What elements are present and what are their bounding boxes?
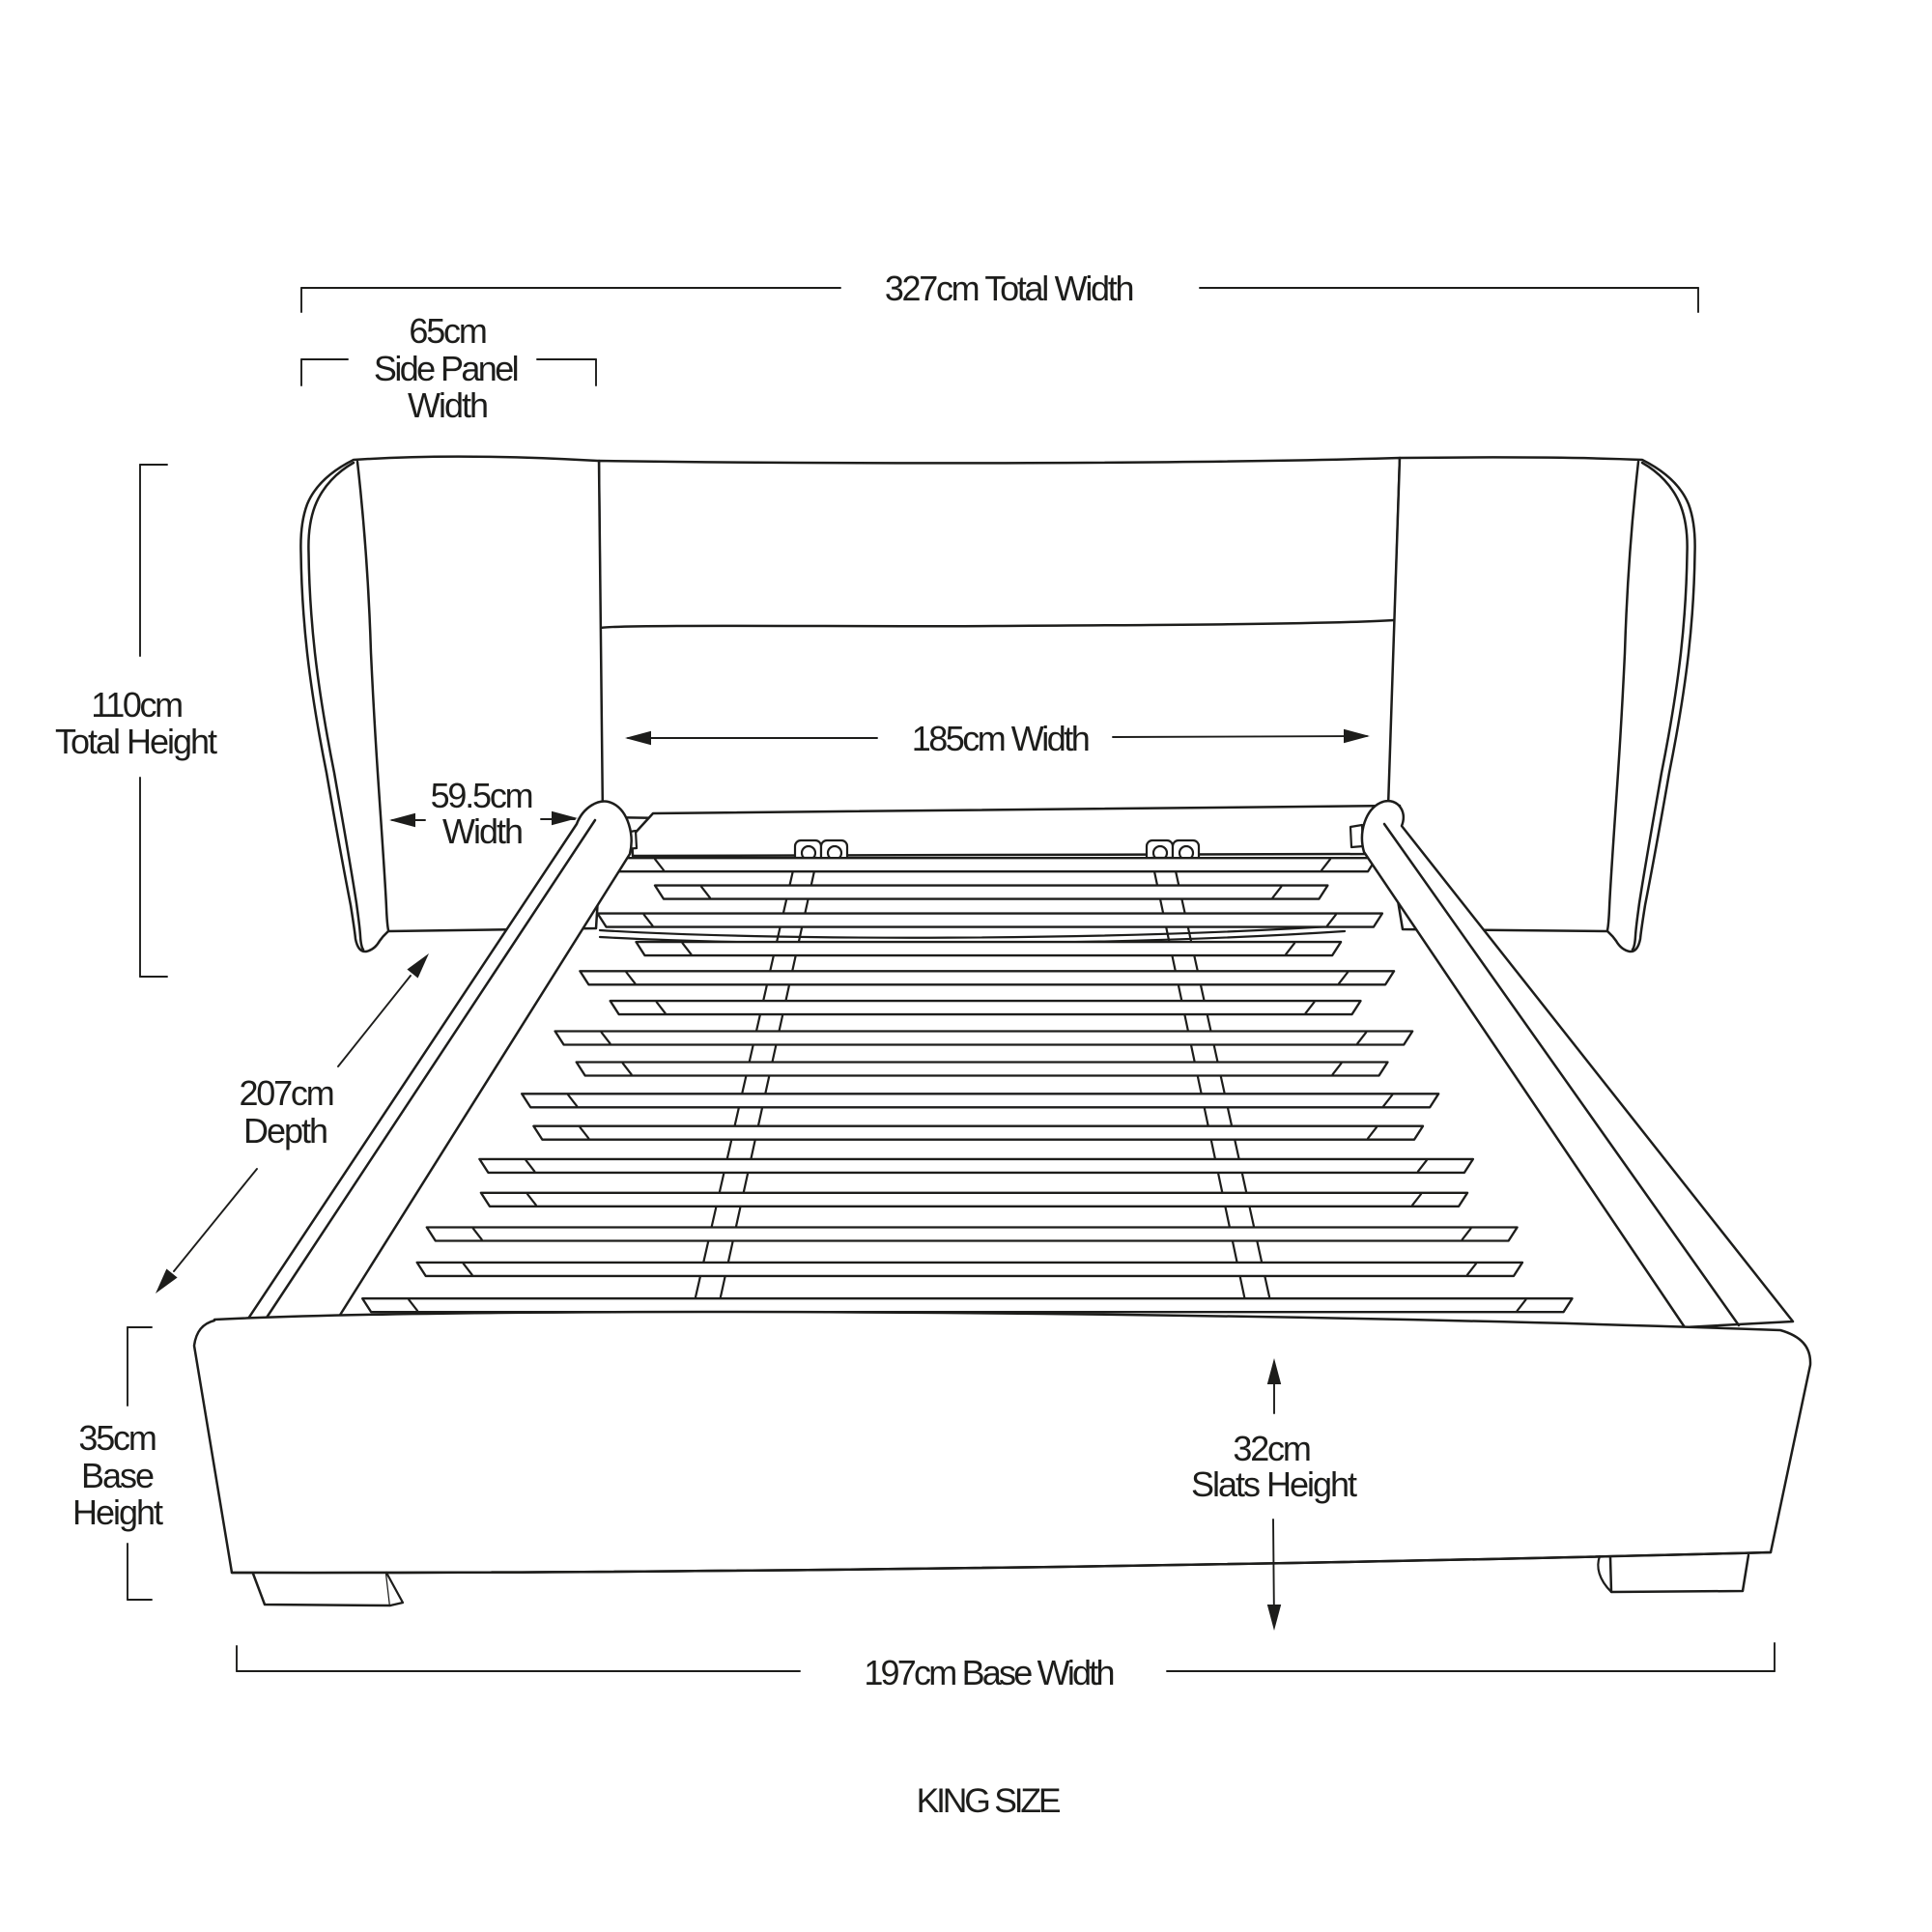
svg-text:197cm Base Width: 197cm Base Width (864, 1653, 1113, 1692)
svg-text:32cm: 32cm (1233, 1429, 1309, 1468)
svg-text:110cm: 110cm (91, 685, 182, 724)
svg-text:59.5cm: 59.5cm (431, 776, 532, 815)
svg-text:185cm Width: 185cm Width (912, 719, 1089, 758)
svg-text:KING SIZE: KING SIZE (917, 1781, 1061, 1820)
svg-text:Height: Height (72, 1492, 163, 1532)
svg-text:Side Panel: Side Panel (374, 349, 518, 388)
svg-text:327cm Total Width: 327cm Total Width (885, 269, 1133, 308)
svg-text:35cm: 35cm (78, 1418, 155, 1458)
svg-text:Total Height: Total Height (55, 722, 217, 761)
svg-text:Slats Height: Slats Height (1191, 1464, 1357, 1504)
svg-text:Base: Base (81, 1456, 154, 1495)
svg-text:Depth: Depth (243, 1111, 327, 1151)
svg-text:207cm: 207cm (239, 1073, 332, 1113)
svg-text:65cm: 65cm (409, 311, 485, 351)
svg-text:Width: Width (442, 811, 522, 851)
svg-text:Width: Width (408, 385, 487, 425)
